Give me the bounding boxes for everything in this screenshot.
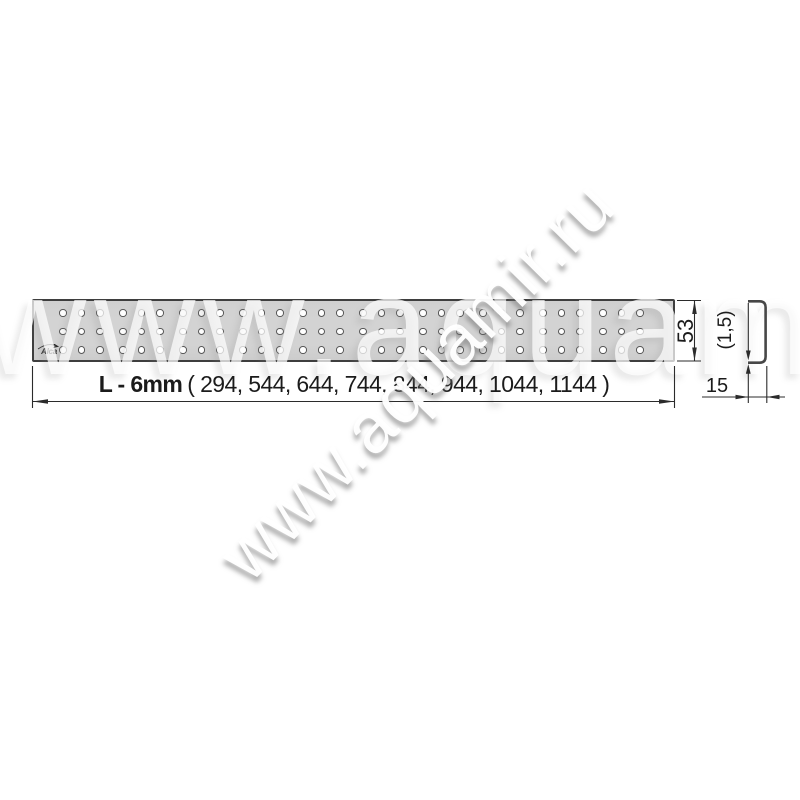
length-label-formula: L - 6mm (99, 371, 183, 397)
technical-drawing: Alca www.aquamir.ru (0, 0, 800, 800)
thickness-arrow-bottom (746, 364, 751, 374)
length-label-values: ( 294, 544, 644, 744, 844, 944, 1044, 11… (187, 371, 609, 397)
dimension-overlay (0, 0, 800, 800)
width-arrow-right (767, 395, 780, 400)
length-label: L - 6mm( 294, 544, 644, 744, 844, 944, 1… (38, 371, 670, 398)
height-label: 53 (673, 309, 697, 353)
length-arrow-right (659, 399, 675, 404)
thickness-arrow-top (746, 351, 751, 361)
thickness-label: (1,5) (715, 301, 737, 359)
length-arrow-left (33, 399, 49, 404)
width-label: 15 (697, 375, 737, 398)
width-arrow-left (736, 395, 749, 400)
side-profile (748, 301, 766, 362)
